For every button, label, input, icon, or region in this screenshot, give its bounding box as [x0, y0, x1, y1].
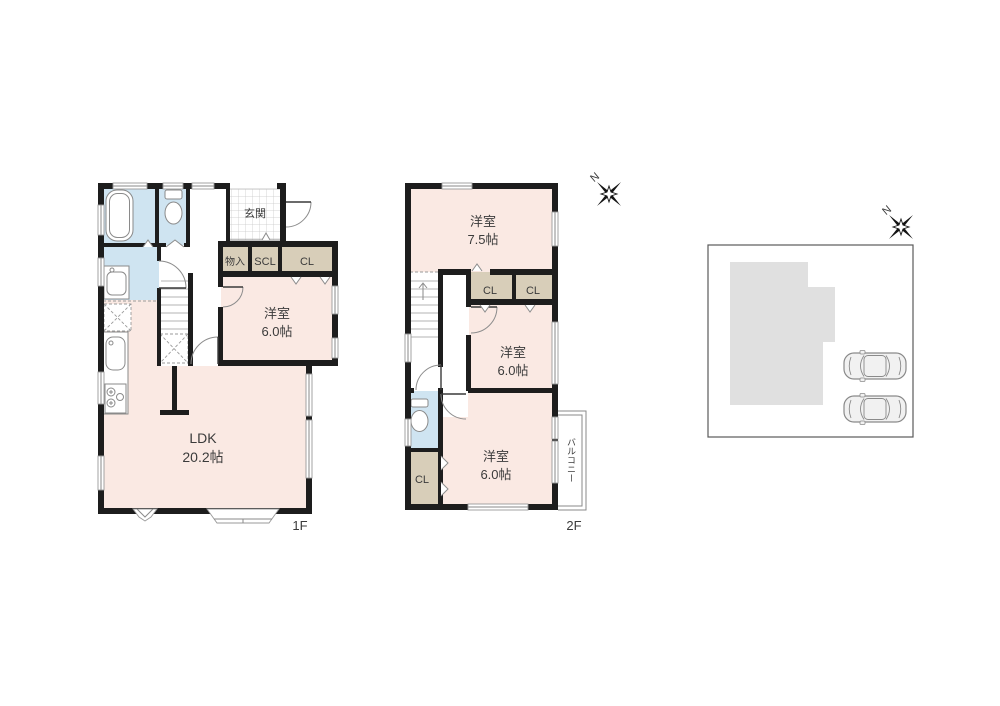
floor2-label: 2F	[566, 518, 581, 533]
car-icon	[844, 394, 906, 425]
bedroom2f-b-size: 6.0帖	[497, 363, 528, 378]
compass-2f: N	[588, 171, 621, 206]
toilet1f-tank	[165, 190, 182, 199]
toilet2f-tank	[411, 399, 428, 407]
shoe-closet-label: SCL	[254, 256, 275, 268]
compass-north-label: N	[880, 204, 894, 218]
toilet1f-bowl	[165, 202, 182, 224]
bedroom2f-a-size: 7.5帖	[467, 232, 498, 247]
bedroom1f-size: 6.0帖	[261, 324, 292, 339]
bedroom2f-c-size: 6.0帖	[480, 467, 511, 482]
entrance-door-arc	[286, 202, 311, 227]
closet2f-b-label: CL	[526, 285, 540, 297]
site-plan	[708, 245, 913, 437]
vanity-sink	[104, 266, 129, 299]
compass-rose-icon	[597, 182, 621, 206]
bedroom2f-a-name: 洋室	[470, 214, 496, 229]
toilet2f-bowl	[411, 411, 428, 432]
entrance-label: 玄関	[244, 206, 266, 220]
ldk-size: 20.2帖	[182, 449, 223, 465]
floorplan-page: 玄関 物入 SCL CL 洋室 6.0帖 LDK 20.2帖 1F	[0, 0, 1000, 706]
compass-north-label: N	[588, 171, 602, 185]
ldk-name: LDK	[189, 430, 217, 446]
ldk-door-arc	[191, 337, 218, 364]
closet1f-label: CL	[300, 256, 314, 268]
bedroom1f-name: 洋室	[264, 306, 290, 321]
car-icon	[844, 351, 906, 382]
bedroom2f-b-name: 洋室	[500, 345, 526, 360]
storage-label: 物入	[225, 255, 245, 268]
ldk-partition-wall	[172, 366, 177, 412]
compass-site: N	[880, 204, 913, 239]
floor2-plan: 洋室 7.5帖 CL CL 洋室 6.0帖 CL 洋室 6.0帖 バルコニー 2…	[405, 183, 586, 533]
floorplan-canvas: 玄関 物入 SCL CL 洋室 6.0帖 LDK 20.2帖 1F	[0, 0, 1000, 706]
staircase-1f	[161, 273, 188, 333]
floor1-label: 1F	[292, 518, 307, 533]
bedroom2f-c-name: 洋室	[483, 449, 509, 464]
balcony-label: バルコニー	[566, 437, 576, 482]
corner-window	[133, 509, 157, 521]
closet2f-a-label: CL	[483, 285, 497, 297]
bedroom2f-a-floor	[408, 186, 555, 272]
compass-rose-icon	[889, 215, 913, 239]
toilet2f-door-arc	[416, 365, 441, 390]
floor1-plan: 玄関 物入 SCL CL 洋室 6.0帖 LDK 20.2帖 1F	[98, 183, 338, 533]
closet2f-c-label: CL	[415, 474, 429, 486]
